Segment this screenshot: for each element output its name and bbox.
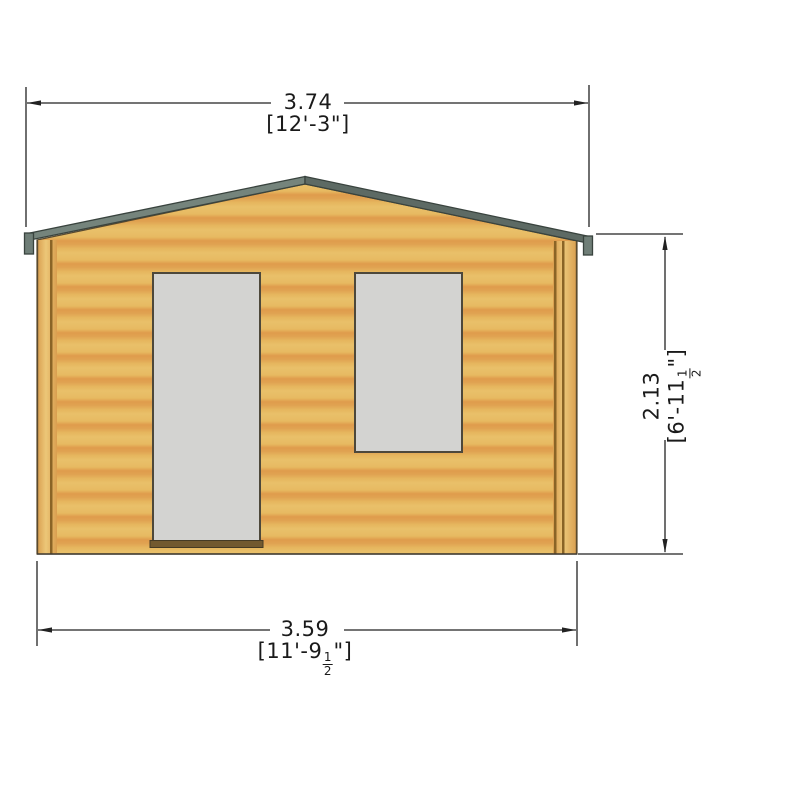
left-corner-post bbox=[37, 240, 57, 554]
top-dimension-imperial: [12'-3"] bbox=[266, 113, 349, 135]
bottom-dimension-metric: 3.59 bbox=[258, 618, 353, 640]
cabin-wall bbox=[37, 184, 577, 554]
window bbox=[355, 273, 462, 452]
door-sill bbox=[150, 541, 263, 548]
arrow-down-icon bbox=[662, 539, 667, 553]
elevation-drawing: 3.74 [12'-3"] 3.59 [11'-912"] 2.13 [6'-1… bbox=[0, 0, 800, 800]
arrow-up-icon bbox=[662, 236, 667, 250]
right-dimension-metric: 2.13 bbox=[639, 349, 664, 444]
bottom-dimension-imperial: [11'-912"] bbox=[258, 640, 353, 677]
door bbox=[150, 273, 263, 548]
right-dimension-label: 2.13 [6'-1112"] bbox=[639, 349, 702, 444]
top-dimension-metric: 3.74 bbox=[266, 91, 349, 113]
top-dimension-label: 3.74 [12'-3"] bbox=[266, 91, 349, 135]
roof-left-end-cap bbox=[25, 233, 34, 254]
arrow-left-icon bbox=[27, 100, 41, 105]
arrow-right-icon bbox=[574, 100, 588, 105]
right-corner-post bbox=[553, 241, 577, 554]
right-dimension-imperial: [6'-1112"] bbox=[664, 349, 702, 444]
arrow-right-icon bbox=[562, 627, 576, 632]
roof-right-end-cap bbox=[584, 236, 593, 255]
bottom-dimension-label: 3.59 [11'-912"] bbox=[258, 618, 353, 677]
arrow-left-icon bbox=[38, 627, 52, 632]
